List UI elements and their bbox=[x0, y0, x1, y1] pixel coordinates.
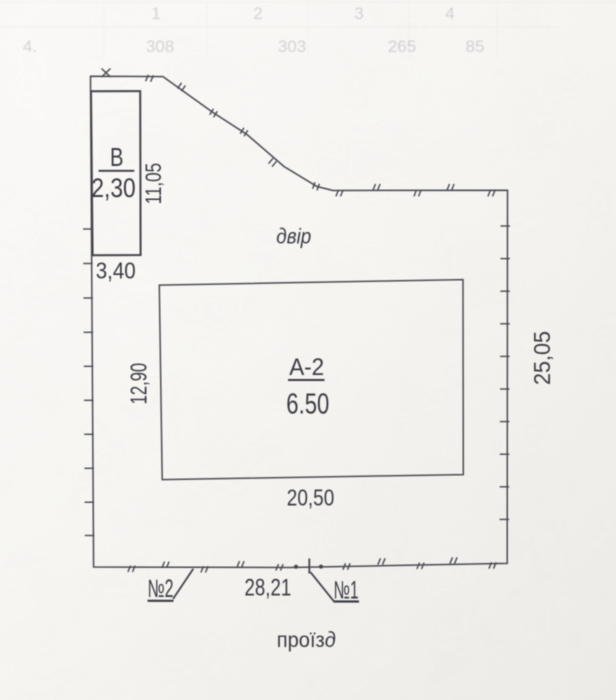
svg-text:3: 3 bbox=[354, 4, 363, 23]
svg-text:25,05: 25,05 bbox=[529, 331, 555, 385]
svg-text:4.: 4. bbox=[23, 37, 37, 56]
svg-text:проїзд: проїзд bbox=[277, 629, 336, 652]
svg-text:двір: двір bbox=[276, 226, 311, 249]
svg-text:303: 303 bbox=[278, 37, 306, 56]
svg-text:308: 308 bbox=[146, 37, 174, 56]
svg-text:№1: №1 bbox=[334, 577, 359, 605]
svg-text:12,90: 12,90 bbox=[126, 363, 152, 405]
svg-text:2,30: 2,30 bbox=[91, 173, 135, 203]
svg-text:6.50: 6.50 bbox=[286, 389, 329, 421]
svg-text:3,40: 3,40 bbox=[96, 258, 136, 284]
svg-text:1: 1 bbox=[151, 4, 160, 23]
svg-text:11,05: 11,05 bbox=[141, 163, 166, 204]
svg-text:2: 2 bbox=[253, 4, 262, 23]
svg-text:265: 265 bbox=[388, 37, 416, 56]
svg-text:20,50: 20,50 bbox=[287, 485, 335, 511]
svg-text:А-2: А-2 bbox=[289, 354, 324, 381]
svg-text:85: 85 bbox=[466, 37, 485, 56]
svg-text:№2: №2 bbox=[148, 575, 174, 603]
svg-text:28,21: 28,21 bbox=[245, 575, 292, 602]
svg-text:В: В bbox=[110, 142, 124, 172]
svg-text:4: 4 bbox=[445, 4, 454, 23]
